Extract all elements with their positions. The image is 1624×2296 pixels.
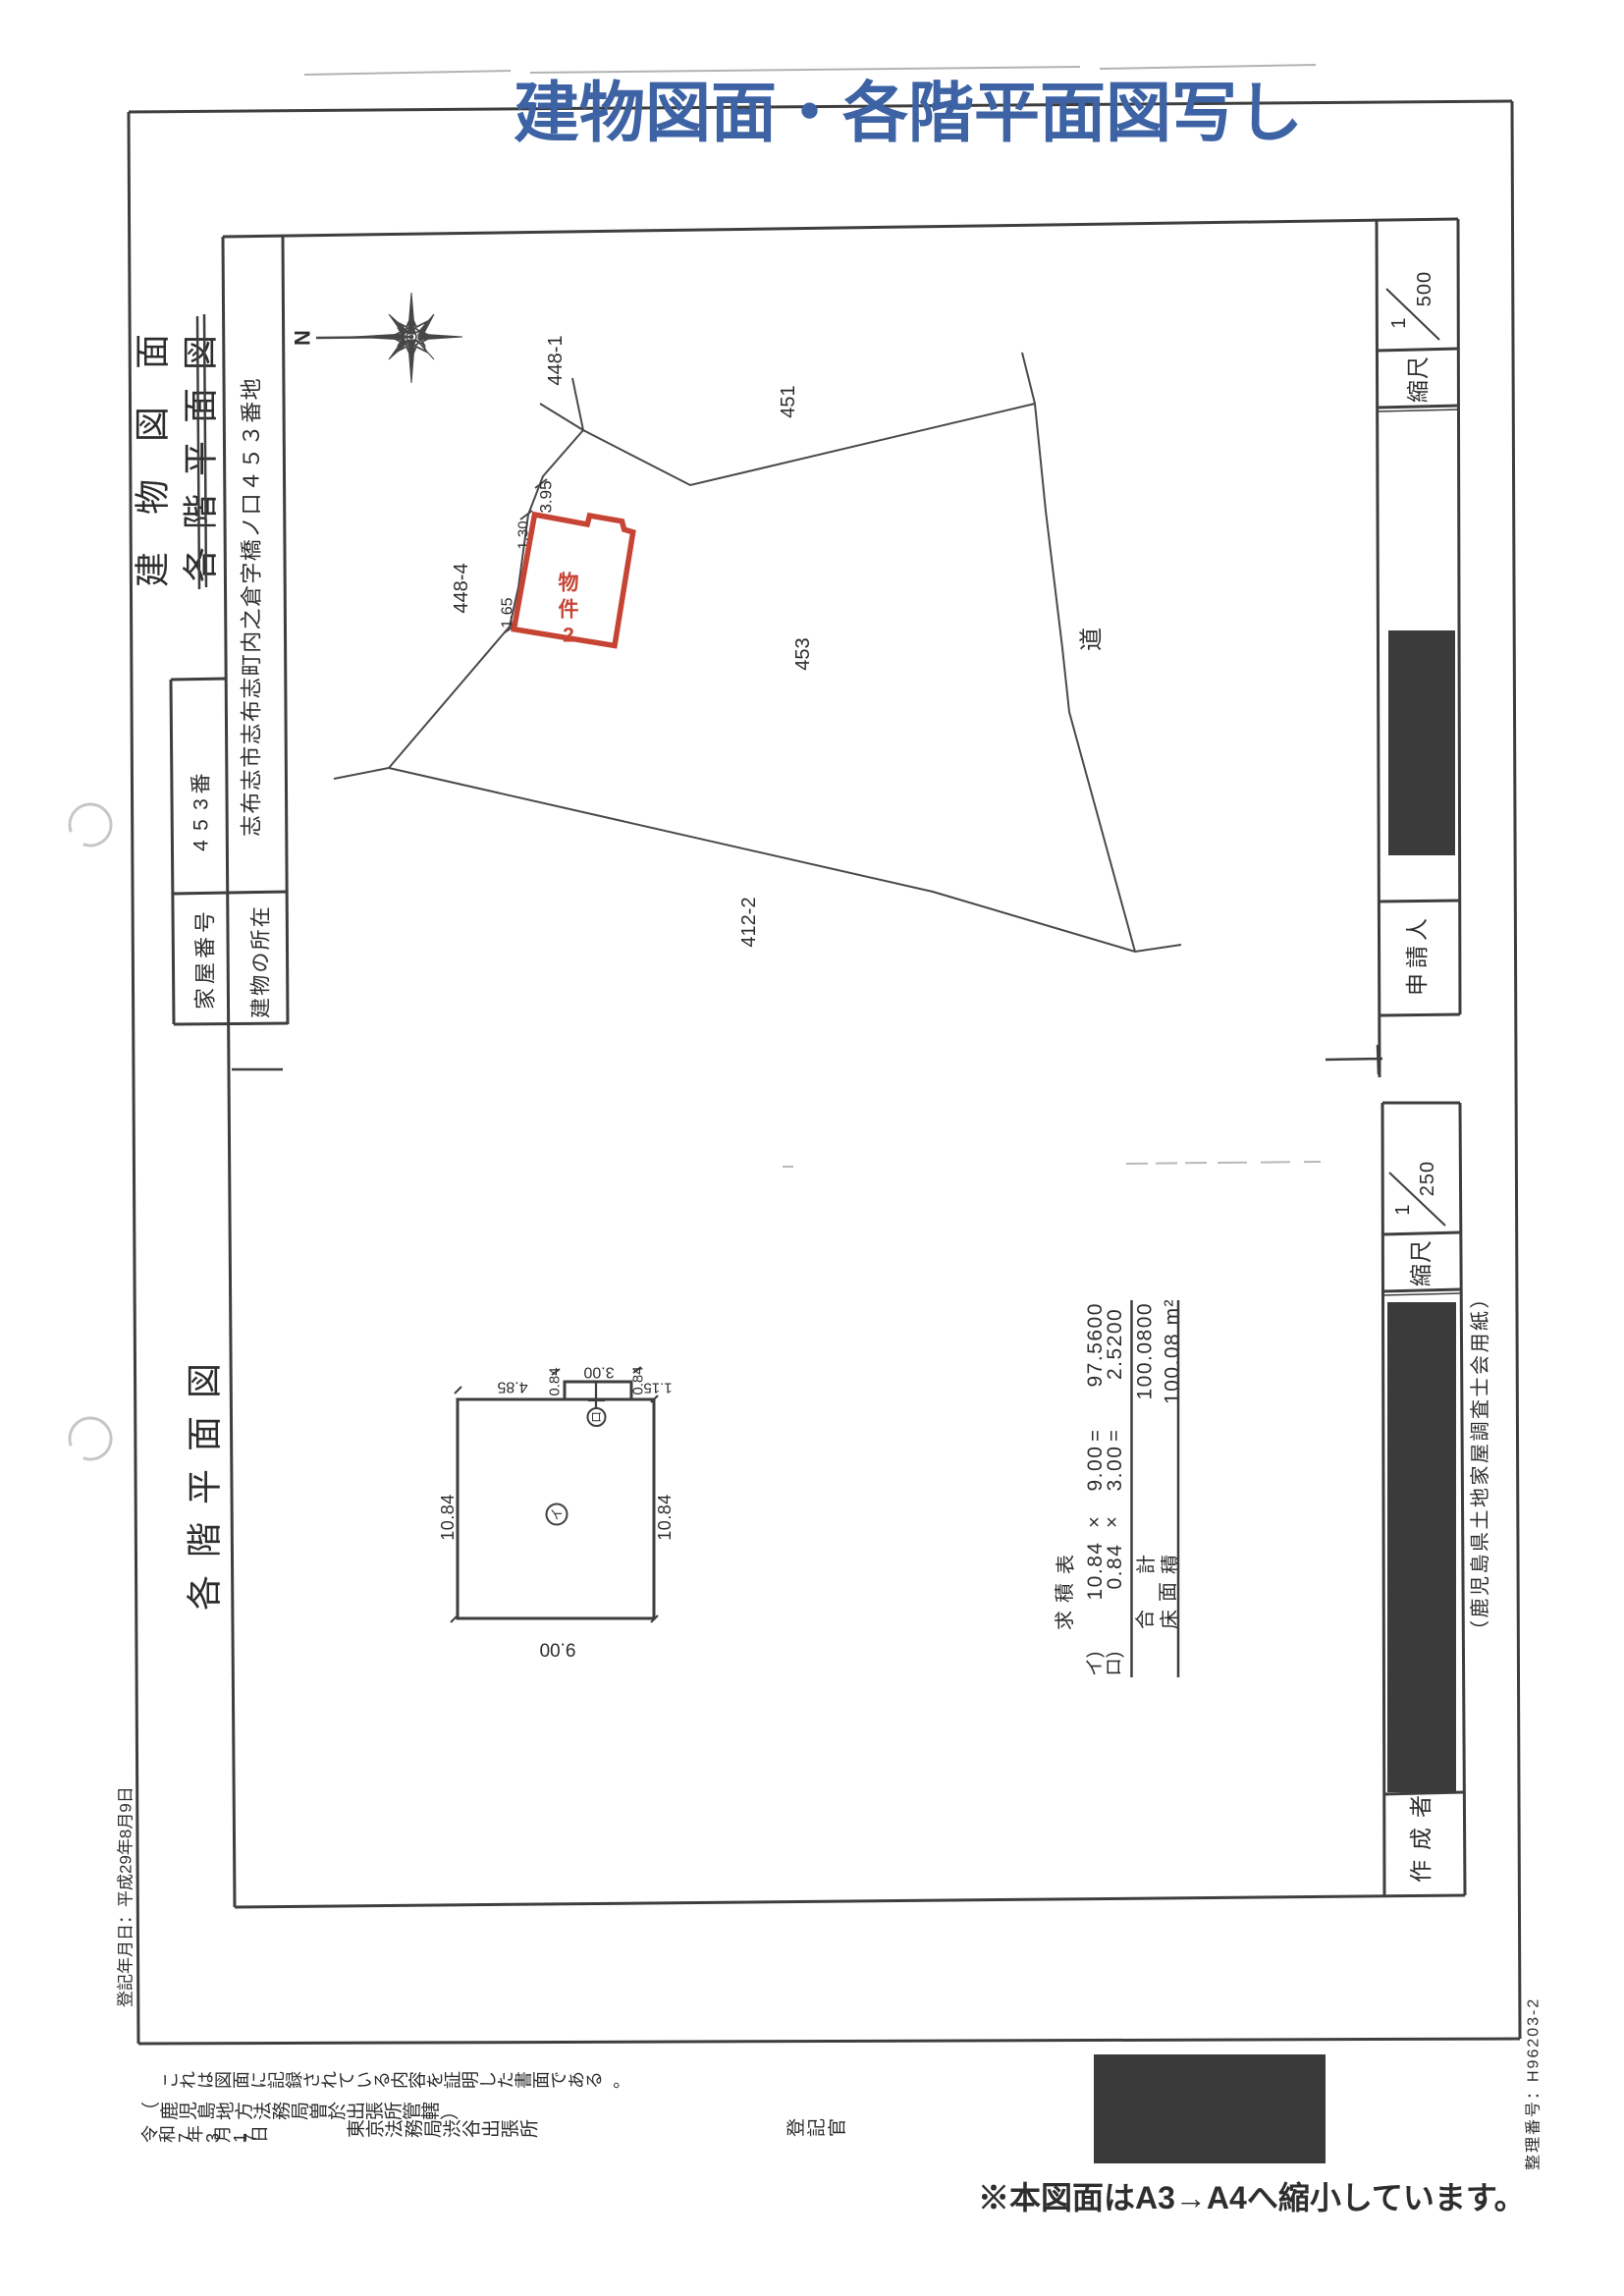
svg-text:2: 2 xyxy=(563,625,574,647)
svg-text:10.84: 10.84 xyxy=(655,1494,675,1541)
svg-text:=: = xyxy=(1104,1430,1125,1442)
svg-text:これは図面に記録されている内容を証明した書面である。: これは図面に記録されている内容を証明した書面である。 xyxy=(161,2071,622,2089)
svg-text:整理番号：H96203-2: 整理番号：H96203-2 xyxy=(1525,1997,1543,2170)
svg-text:縮尺: 縮尺 xyxy=(1405,355,1431,403)
svg-text:イ): イ) xyxy=(1085,1652,1106,1676)
svg-text:10.84: 10.84 xyxy=(438,1494,458,1541)
svg-text:申請人: 申請人 xyxy=(1404,913,1430,996)
svg-text:4.85: 4.85 xyxy=(497,1379,527,1395)
svg-text:9.00: 9.00 xyxy=(540,1639,576,1660)
svg-text:0.84: 0.84 xyxy=(1104,1544,1126,1590)
svg-text:2.5200: 2.5200 xyxy=(1104,1308,1126,1380)
svg-text:3.95: 3.95 xyxy=(537,480,556,513)
svg-text:250: 250 xyxy=(1417,1161,1438,1196)
svg-text:3.00: 3.00 xyxy=(1104,1446,1126,1492)
svg-text:※本図面はA3→A4へ縮小しています。: ※本図面はA3→A4へ縮小しています。 xyxy=(978,2180,1526,2215)
svg-text:登記年月日：平成29年8月9日: 登記年月日：平成29年8月9日 xyxy=(117,1786,135,2007)
svg-text:N: N xyxy=(291,330,315,346)
svg-text:×: × xyxy=(1102,1516,1123,1528)
svg-text:道: 道 xyxy=(1079,628,1106,651)
svg-text:積: 積 xyxy=(1054,1583,1076,1603)
svg-text:建物図面: 建物図面 xyxy=(133,297,173,587)
svg-text:448-4: 448-4 xyxy=(451,563,472,613)
svg-text:4: 4 xyxy=(190,840,213,851)
svg-text:合: 合 xyxy=(1134,1610,1157,1629)
svg-text:各階平面図: 各階平面図 xyxy=(185,1345,225,1611)
svg-text:建物図面・各階平面図写し: 建物図面・各階平面図写し xyxy=(514,77,1303,150)
svg-text:1.15: 1.15 xyxy=(643,1380,672,1396)
svg-text:453: 453 xyxy=(792,637,814,670)
svg-text:志布志市志布志町内之倉字橋ノ口４５３番地: 志布志市志布志町内之倉字橋ノ口４５３番地 xyxy=(240,377,264,837)
svg-text:451: 451 xyxy=(778,385,799,417)
svg-text:家屋番号: 家屋番号 xyxy=(193,907,218,1010)
svg-text:ロ): ロ) xyxy=(1105,1652,1125,1676)
svg-text:東京法務局渋谷出張所: 東京法務局渋谷出張所 xyxy=(346,2118,540,2138)
svg-text:建物の所在: 建物の所在 xyxy=(250,904,273,1018)
svg-text:100.08 m²: 100.08 m² xyxy=(1162,1298,1184,1404)
svg-text:1: 1 xyxy=(1388,317,1410,328)
svg-text:令和7年3月17日: 令和7年3月17日 xyxy=(140,2125,270,2143)
svg-text:100.0800: 100.0800 xyxy=(1134,1302,1157,1400)
svg-text:5: 5 xyxy=(190,819,213,831)
svg-text:縮尺: 縮尺 xyxy=(1408,1239,1434,1286)
svg-text:1: 1 xyxy=(1392,1204,1414,1215)
svg-text:3.00: 3.00 xyxy=(583,1364,614,1381)
svg-text:計: 計 xyxy=(1135,1555,1158,1574)
svg-text:500: 500 xyxy=(1414,271,1435,306)
svg-text:求: 求 xyxy=(1054,1611,1076,1630)
svg-text:各階平面図: 各階平面図 xyxy=(181,317,221,582)
svg-text:（鹿児島地方法務局曽於出張所管轄）: （鹿児島地方法務局曽於出張所管轄） xyxy=(140,2102,460,2120)
svg-text:0.84: 0.84 xyxy=(547,1367,564,1395)
svg-text:448-1: 448-1 xyxy=(545,335,567,385)
svg-text:イ: イ xyxy=(550,1507,565,1520)
svg-text:表: 表 xyxy=(1055,1555,1077,1574)
svg-text:件: 件 xyxy=(559,599,579,622)
svg-text:番: 番 xyxy=(190,774,213,794)
svg-text:作成者: 作成者 xyxy=(1408,1785,1434,1883)
svg-text:ロ: ロ xyxy=(590,1411,604,1423)
svg-text:登記官: 登記官 xyxy=(785,2116,848,2137)
svg-text:物: 物 xyxy=(559,572,579,595)
svg-text:412-2: 412-2 xyxy=(738,897,760,947)
svg-text:面: 面 xyxy=(1158,1582,1179,1602)
svg-text:（鹿児島県土地家屋調査士会用紙）: （鹿児島県土地家屋調査士会用紙） xyxy=(1469,1286,1491,1640)
svg-text:3: 3 xyxy=(190,798,213,810)
